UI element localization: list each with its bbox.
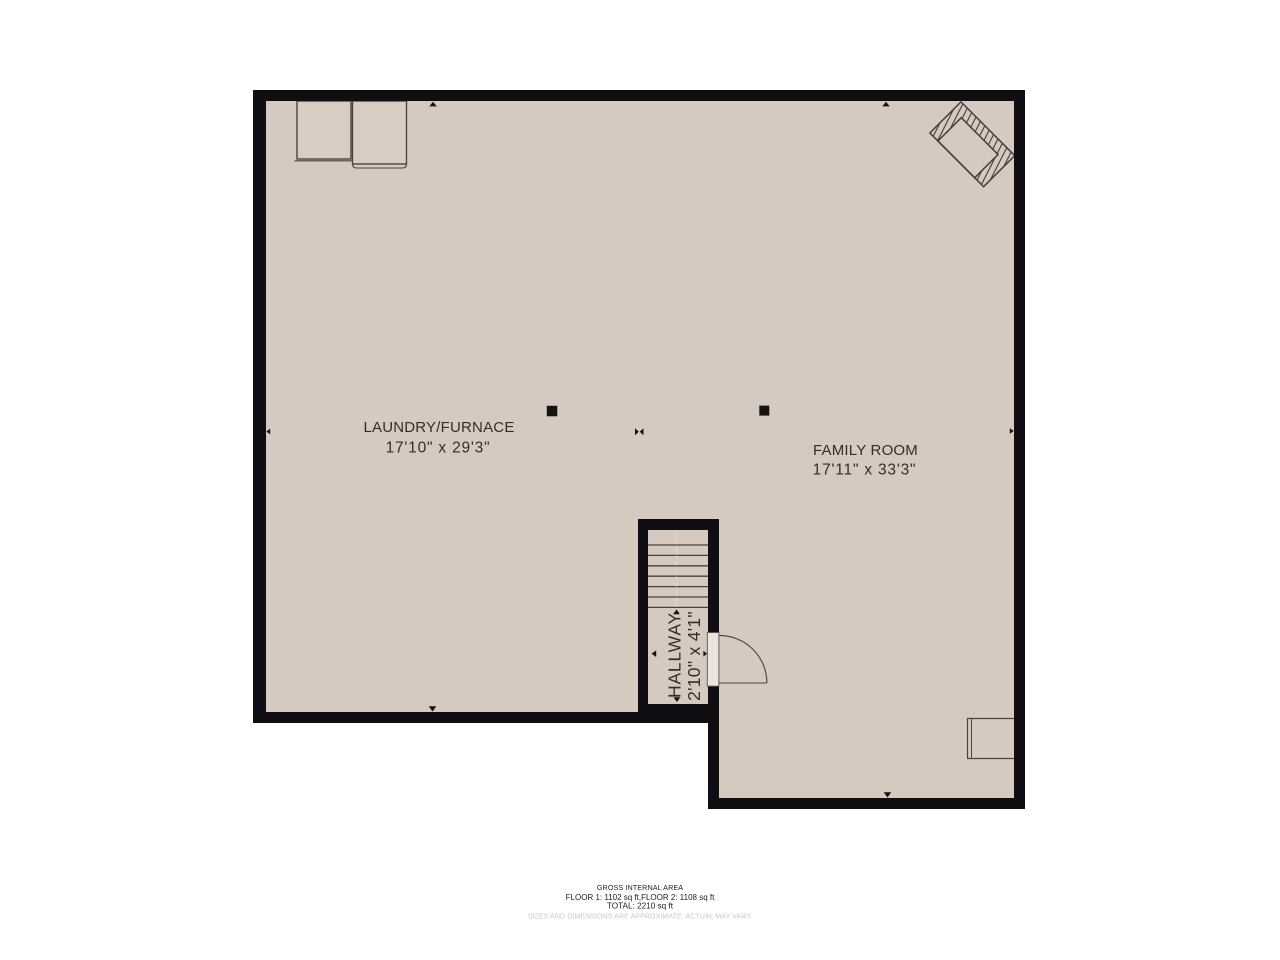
svg-text:17'11" x 33'3": 17'11" x 33'3" [813, 462, 917, 479]
svg-text:SIZES AND DIMENSIONS ARE APPRO: SIZES AND DIMENSIONS ARE APPROXIMATE, AC… [528, 913, 753, 920]
svg-text:FLOOR 1: 1102 sq ft,FLOOR 2: 1: FLOOR 1: 1102 sq ft,FLOOR 2: 1108 sq ft [566, 893, 715, 902]
svg-text:GROSS INTERNAL AREA: GROSS INTERNAL AREA [597, 883, 683, 892]
svg-text:HALLWAY: HALLWAY [665, 612, 685, 698]
svg-text:2'10" x 4'1": 2'10" x 4'1" [684, 611, 704, 701]
svg-text:17'10" x 29'3": 17'10" x 29'3" [386, 440, 491, 457]
svg-text:FAMILY ROOM: FAMILY ROOM [813, 442, 918, 459]
svg-text:TOTAL: 2210 sq ft: TOTAL: 2210 sq ft [607, 902, 674, 911]
svg-text:LAUNDRY/FURNACE: LAUNDRY/FURNACE [363, 419, 514, 436]
